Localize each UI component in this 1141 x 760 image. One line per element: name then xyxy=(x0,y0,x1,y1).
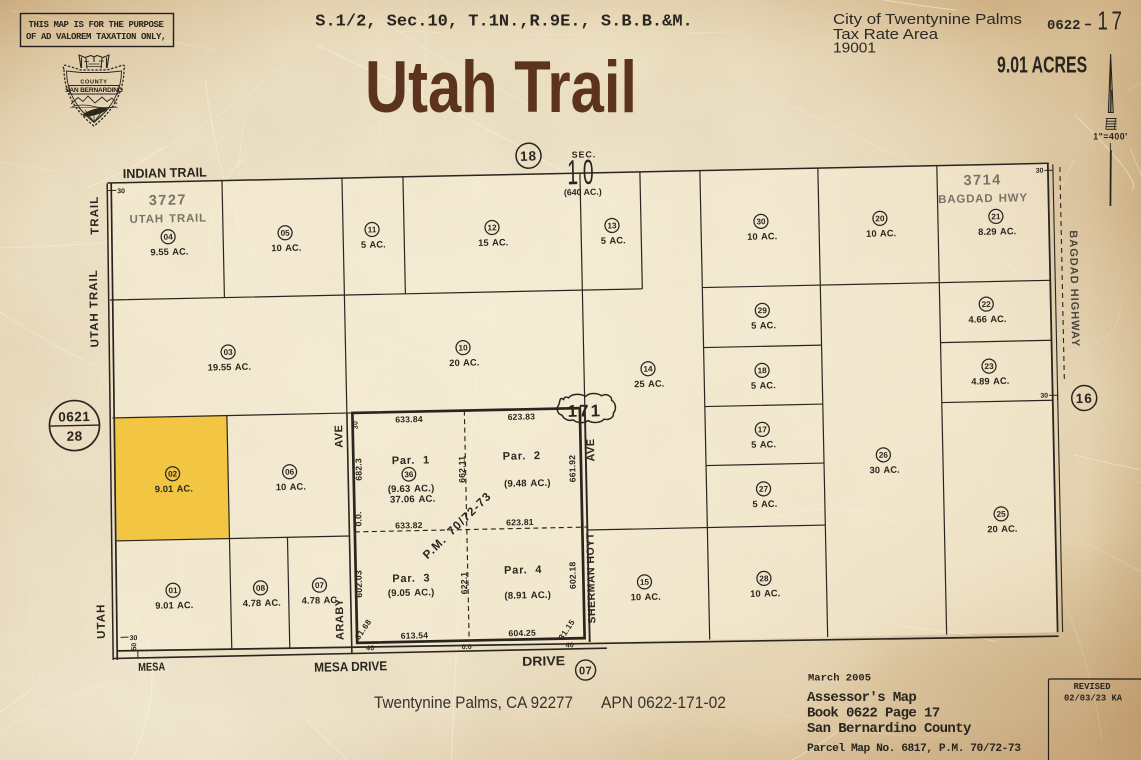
svg-text:10 AC.: 10 AC. xyxy=(631,592,661,603)
svg-text:4.66 AC.: 4.66 AC. xyxy=(968,314,1006,325)
svg-text:Twentynine Palms, CA 92277: Twentynine Palms, CA 92277 xyxy=(374,694,573,712)
svg-text:05: 05 xyxy=(280,229,290,238)
svg-text:5 AC.: 5 AC. xyxy=(752,499,777,510)
svg-text:661.92: 661.92 xyxy=(567,455,578,483)
svg-text:17: 17 xyxy=(758,425,768,434)
svg-text:5 AC.: 5 AC. xyxy=(361,239,386,250)
svg-text:21: 21 xyxy=(991,212,1001,221)
svg-text:604.25: 604.25 xyxy=(508,628,536,639)
svg-text:30: 30 xyxy=(1036,168,1044,175)
svg-text:15: 15 xyxy=(640,578,650,587)
svg-text:(640 AC.): (640 AC.) xyxy=(564,187,602,198)
svg-text:40: 40 xyxy=(366,645,374,652)
svg-text:City of Twentynine Palms: City of Twentynine Palms xyxy=(833,12,1022,28)
svg-text:23: 23 xyxy=(984,362,994,371)
svg-text:633.84: 633.84 xyxy=(395,414,423,425)
svg-text:Par. 3: Par. 3 xyxy=(392,572,430,585)
svg-text:March 2005: March 2005 xyxy=(808,673,871,685)
svg-text:602.18: 602.18 xyxy=(567,561,578,589)
svg-text:01: 01 xyxy=(168,586,178,595)
svg-text:0621: 0621 xyxy=(58,409,90,425)
svg-text:(8.91 AC.): (8.91 AC.) xyxy=(504,590,551,602)
svg-text:10 AC.: 10 AC. xyxy=(866,228,896,239)
svg-text:COUNTY: COUNTY xyxy=(80,80,107,86)
svg-text:26: 26 xyxy=(879,451,889,460)
svg-text:(9.48 AC.): (9.48 AC.) xyxy=(504,478,551,490)
svg-text:Par. 2: Par. 2 xyxy=(503,450,541,463)
svg-text:REVISED: REVISED xyxy=(1074,682,1111,692)
svg-text:9.01 AC.: 9.01 AC. xyxy=(155,483,193,494)
svg-text:Par. 4: Par. 4 xyxy=(504,564,542,577)
svg-text:INDIAN TRAIL: INDIAN TRAIL xyxy=(123,164,207,181)
svg-text:BAGDAD HIGHWAY: BAGDAD HIGHWAY xyxy=(1067,230,1081,347)
svg-text:03: 03 xyxy=(223,348,233,357)
svg-text:4.89 AC.: 4.89 AC. xyxy=(971,376,1009,387)
svg-text:682.3: 682.3 xyxy=(353,458,363,481)
svg-text:613.54: 613.54 xyxy=(401,630,429,641)
svg-text:622.1: 622.1 xyxy=(459,572,469,595)
svg-text:40: 40 xyxy=(566,642,574,649)
svg-text:Assessor's Map: Assessor's Map xyxy=(807,690,916,706)
svg-text:06: 06 xyxy=(285,468,295,477)
svg-text:19.55 AC.: 19.55 AC. xyxy=(208,362,252,373)
svg-text:UTAH TRAIL: UTAH TRAIL xyxy=(129,212,207,226)
svg-text:623.83: 623.83 xyxy=(508,411,536,422)
svg-text:MESA: MESA xyxy=(138,661,165,674)
svg-text:3714: 3714 xyxy=(963,172,1002,189)
svg-text:1"=400': 1"=400' xyxy=(1093,132,1127,142)
svg-text:27: 27 xyxy=(759,485,769,494)
svg-text:10: 10 xyxy=(567,152,599,192)
svg-text:30: 30 xyxy=(1040,393,1048,400)
svg-text:28: 28 xyxy=(67,429,83,444)
svg-text:9.01 AC.: 9.01 AC. xyxy=(155,600,193,611)
svg-text:37.06 AC.: 37.06 AC. xyxy=(390,494,436,506)
svg-text:30: 30 xyxy=(129,635,137,642)
svg-text:10 AC.: 10 AC. xyxy=(750,588,780,599)
svg-text:07: 07 xyxy=(579,665,592,677)
svg-text:Par. 1: Par. 1 xyxy=(392,454,430,467)
svg-text:10 AC.: 10 AC. xyxy=(276,482,306,493)
svg-text:DRIVE: DRIVE xyxy=(522,653,566,669)
svg-text:08: 08 xyxy=(256,584,266,593)
svg-text:THIS MAP IS FOR THE PURPOSE: THIS MAP IS FOR THE PURPOSE xyxy=(28,20,164,30)
svg-text:30: 30 xyxy=(117,188,125,195)
svg-text:18: 18 xyxy=(520,149,537,164)
svg-text:30: 30 xyxy=(353,420,360,429)
svg-text:19001: 19001 xyxy=(833,41,876,57)
svg-text:0.0.: 0.0. xyxy=(353,511,363,526)
svg-text:22: 22 xyxy=(982,300,992,309)
svg-text:18: 18 xyxy=(757,366,767,375)
svg-text:633.82: 633.82 xyxy=(395,520,423,531)
svg-text:171: 171 xyxy=(567,401,602,421)
svg-text:Utah Trail: Utah Trail xyxy=(365,47,637,128)
svg-text:Parcel Map No. 6817, P.M. 70/7: Parcel Map No. 6817, P.M. 70/72-73 xyxy=(807,743,1021,755)
svg-text:30: 30 xyxy=(756,217,766,226)
svg-text:5 AC.: 5 AC. xyxy=(751,439,776,450)
svg-text:16: 16 xyxy=(1076,391,1093,406)
svg-text:5 AC.: 5 AC. xyxy=(601,235,626,246)
svg-text:Book 0622 Page 17: Book 0622 Page 17 xyxy=(807,706,940,722)
svg-text:10 AC.: 10 AC. xyxy=(271,243,301,254)
svg-text:12: 12 xyxy=(487,223,497,232)
svg-text:9.55 AC.: 9.55 AC. xyxy=(150,247,188,258)
svg-text:25 AC.: 25 AC. xyxy=(634,379,664,390)
svg-text:9.01 ACRES: 9.01 ACRES xyxy=(997,53,1087,79)
svg-text:UTAH TRAIL: UTAH TRAIL xyxy=(88,269,102,347)
svg-text:TRAIL: TRAIL xyxy=(89,196,102,235)
svg-text:602.03: 602.03 xyxy=(354,570,365,598)
svg-text:20 AC.: 20 AC. xyxy=(987,524,1017,535)
svg-text:3727: 3727 xyxy=(149,192,188,209)
svg-text:5 AC.: 5 AC. xyxy=(751,320,776,331)
svg-text:07: 07 xyxy=(315,581,325,590)
svg-text:623.81: 623.81 xyxy=(506,517,534,528)
svg-text:13: 13 xyxy=(607,221,617,230)
svg-text:10 AC.: 10 AC. xyxy=(747,231,777,242)
svg-text:OF AD VALOREM TAXATION ONLY,: OF AD VALOREM TAXATION ONLY, xyxy=(26,32,166,42)
svg-text:BAGDAD HWY: BAGDAD HWY xyxy=(938,192,1028,206)
svg-text:AVE: AVE xyxy=(585,438,597,462)
svg-text:36: 36 xyxy=(404,470,414,479)
svg-text:15 AC.: 15 AC. xyxy=(478,237,508,248)
svg-text:11: 11 xyxy=(368,225,377,234)
svg-text:4.78 AC.: 4.78 AC. xyxy=(302,595,340,606)
svg-text:17: 17 xyxy=(1098,5,1126,35)
svg-text:02: 02 xyxy=(168,470,178,479)
svg-text:4.78 AC.: 4.78 AC. xyxy=(243,598,281,609)
svg-text:(9.05 AC.): (9.05 AC.) xyxy=(388,587,435,599)
svg-text:20: 20 xyxy=(875,214,885,223)
svg-text:0622: 0622 xyxy=(1047,18,1081,34)
svg-text:SHERMAN HOYT: SHERMAN HOYT xyxy=(584,532,598,623)
svg-text:25: 25 xyxy=(996,510,1006,519)
svg-text:10: 10 xyxy=(458,343,468,352)
svg-text:50: 50 xyxy=(131,643,138,651)
svg-text:AVE: AVE xyxy=(333,424,345,448)
svg-text:5 AC.: 5 AC. xyxy=(751,380,776,391)
svg-text:8.29 AC.: 8.29 AC. xyxy=(978,226,1016,237)
svg-text:28: 28 xyxy=(759,574,769,583)
svg-text:02/03/23 KA: 02/03/23 KA xyxy=(1064,694,1123,704)
svg-text:29: 29 xyxy=(758,306,768,315)
svg-text:MESA DRIVE: MESA DRIVE xyxy=(314,658,388,675)
svg-text:UTAH: UTAH xyxy=(95,604,108,639)
svg-text:30 AC.: 30 AC. xyxy=(869,465,899,476)
svg-text:20 AC.: 20 AC. xyxy=(449,357,479,368)
svg-text:APN 0622-171-02: APN 0622-171-02 xyxy=(601,694,726,712)
svg-text:14: 14 xyxy=(643,365,653,374)
svg-text:04: 04 xyxy=(163,233,173,242)
svg-text:SAN BERNARDINO: SAN BERNARDINO xyxy=(65,87,123,94)
svg-text:0.0: 0.0 xyxy=(462,644,472,651)
svg-text:662.11: 662.11 xyxy=(457,456,468,483)
svg-text:S.1/2, Sec.10, T.1N.,R.9E., S.: S.1/2, Sec.10, T.1N.,R.9E., S.B.B.&M. xyxy=(315,13,692,32)
svg-text:San Bernardino County: San Bernardino County xyxy=(807,721,972,737)
